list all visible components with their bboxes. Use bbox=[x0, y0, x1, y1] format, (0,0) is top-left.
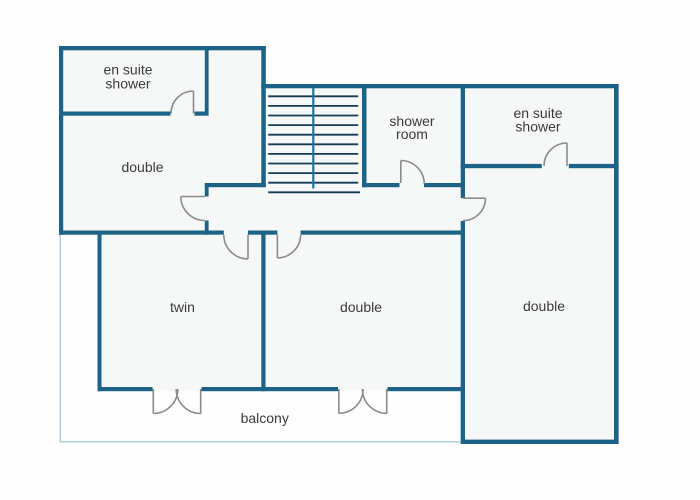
svg-text:twin: twin bbox=[170, 299, 195, 315]
svg-text:double: double bbox=[121, 159, 163, 175]
svg-text:double: double bbox=[523, 298, 565, 314]
svg-text:shower: shower bbox=[105, 76, 150, 92]
svg-text:room: room bbox=[396, 126, 428, 142]
svg-text:balcony: balcony bbox=[241, 410, 289, 426]
svg-text:double: double bbox=[340, 299, 382, 315]
svg-text:shower: shower bbox=[515, 119, 560, 135]
